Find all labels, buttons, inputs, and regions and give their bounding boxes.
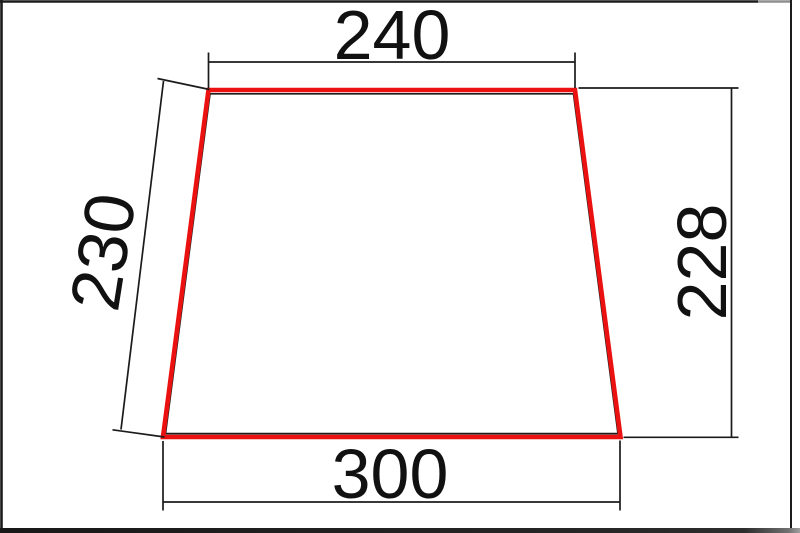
left-extension-bottom	[113, 430, 165, 437]
bottom-edge-bar	[0, 528, 800, 533]
dimension-label-left-side: 230	[59, 189, 146, 315]
trapezoid-black-outline	[166, 94, 619, 434]
dimension-label-top-width: 240	[334, 0, 451, 70]
trapezoid-red-outline	[163, 90, 621, 437]
left-extension-top	[158, 79, 210, 90]
dimension-label-bottom-width: 300	[332, 439, 449, 509]
dimension-label-right-height: 228	[667, 204, 737, 321]
drawing-canvas: 240 300 228 230	[0, 0, 800, 533]
